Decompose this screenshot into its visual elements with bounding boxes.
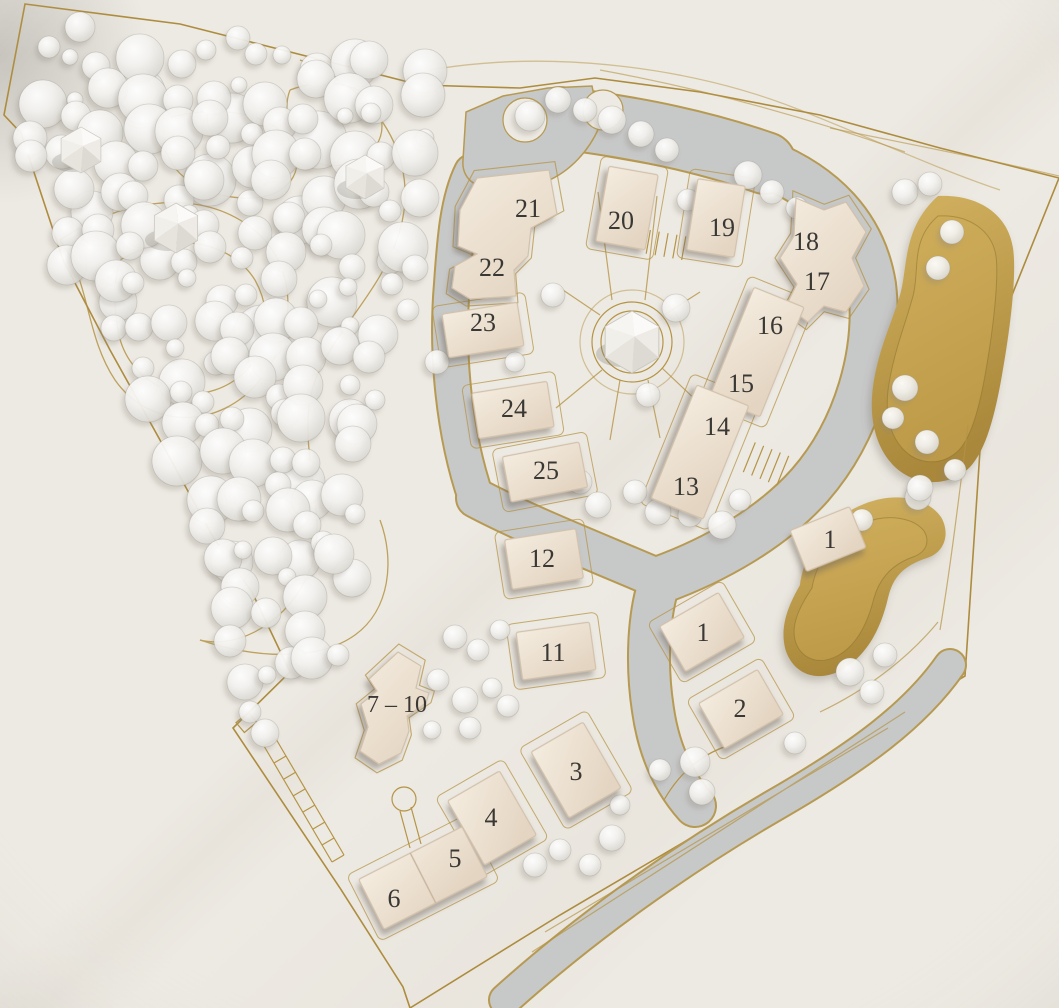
building-label-6: 6 xyxy=(388,884,401,913)
building-label-1-south: 1 xyxy=(697,618,710,647)
building-label-7-10: 7 – 10 xyxy=(367,692,427,718)
building-label-5: 5 xyxy=(449,844,462,873)
building-label-25: 25 xyxy=(533,456,559,485)
building-label-19: 19 xyxy=(709,213,735,242)
building-label-23: 23 xyxy=(470,308,496,337)
building-label-24: 24 xyxy=(501,394,527,423)
building-label-11: 11 xyxy=(540,638,565,667)
building-label-20: 20 xyxy=(608,206,634,235)
building-label-18: 18 xyxy=(793,227,819,256)
masterplan-model: 21 22 23 20 19 18 17 16 15 14 13 24 25 1… xyxy=(0,0,1059,1008)
building-label-3: 3 xyxy=(570,757,583,786)
building-label-15: 15 xyxy=(728,369,754,398)
building-label-2: 2 xyxy=(734,694,747,723)
site-model-photo: 21 22 23 20 19 18 17 16 15 14 13 24 25 1… xyxy=(0,0,1059,1008)
building-label-13: 13 xyxy=(673,472,699,501)
building-label-14: 14 xyxy=(704,412,730,441)
building-label-4: 4 xyxy=(485,803,498,832)
building-label-12: 12 xyxy=(529,544,555,573)
building-label-22: 22 xyxy=(479,253,505,282)
building-label-17: 17 xyxy=(804,267,830,296)
building-label-1-east: 1 xyxy=(824,525,837,554)
building-label-21: 21 xyxy=(515,194,541,223)
building-label-16: 16 xyxy=(757,311,783,340)
